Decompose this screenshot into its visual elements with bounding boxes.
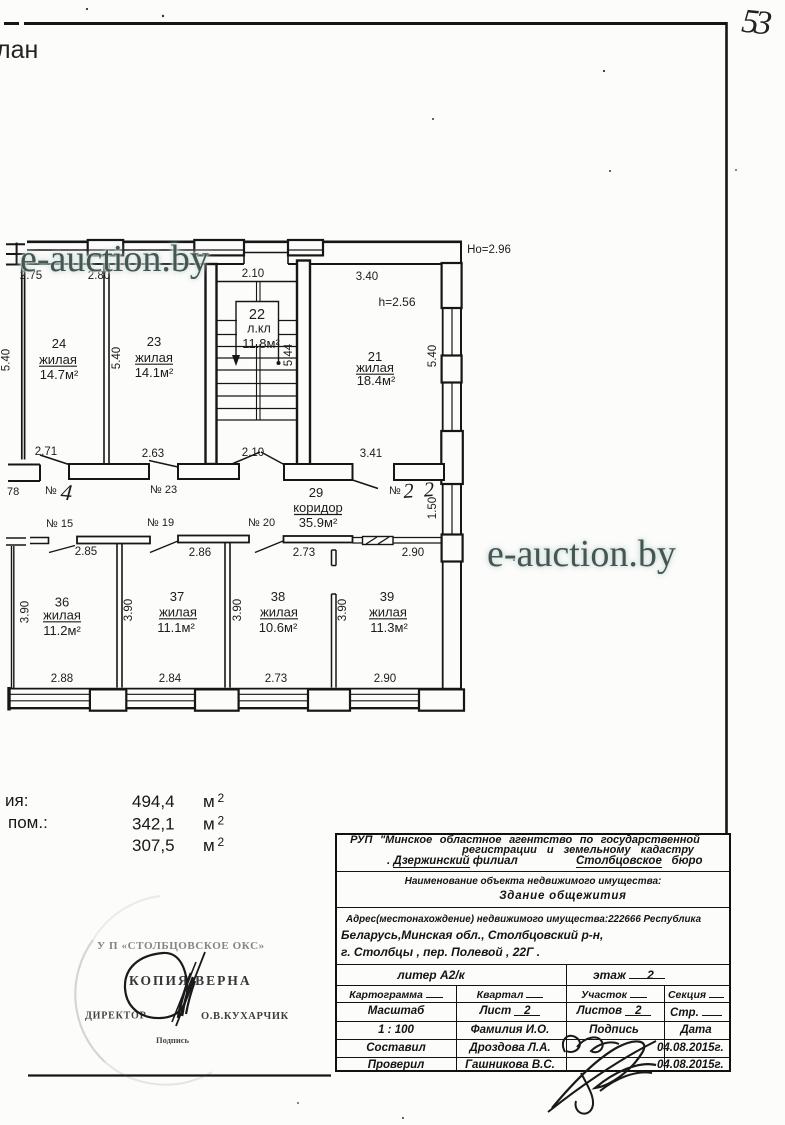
svg-text:2.90: 2.90 [402,547,424,559]
svg-text:3.90: 3.90 [123,599,135,621]
svg-text:35.9м²: 35.9м² [299,515,338,530]
svg-text:жилая: жилая [43,608,81,623]
svg-text:2.10: 2.10 [242,447,264,459]
svg-text:2.85: 2.85 [75,546,97,558]
svg-text:коридор: коридор [293,500,343,515]
svg-text:2.63: 2.63 [142,448,164,460]
svg-text:У П «СТОЛБЦОВСКОЕ ОКС»: У П «СТОЛБЦОВСКОЕ ОКС» [97,940,265,952]
svg-text:5.40: 5.40 [1,349,13,371]
svg-text:2.88: 2.88 [51,673,73,685]
svg-text:2.86: 2.86 [189,547,211,559]
svg-text:2.10: 2.10 [242,268,264,280]
svg-text:11.1м²: 11.1м² [157,620,195,635]
svg-text:ия:: ия: [5,791,28,810]
svg-text:3.90: 3.90 [232,599,244,621]
svg-text:О.В.КУХАРЧИК: О.В.КУХАРЧИК [201,1011,289,1022]
svg-text:№ 20: № 20 [248,517,275,529]
svg-text:494,4: 494,4 [132,792,175,811]
svg-text:11.3м²: 11.3м² [370,620,408,635]
svg-text:жилая: жилая [39,352,77,367]
svg-text:№: № [389,485,401,497]
svg-text:2: 2 [218,835,225,849]
svg-text:37: 37 [170,589,184,604]
svg-text:53: 53 [740,3,774,43]
svg-text:14.1м²: 14.1м² [135,365,174,380]
svg-text:3.90: 3.90 [20,601,32,623]
svg-text:жилая: жилая [159,605,197,620]
svg-text:3.41: 3.41 [360,448,382,460]
svg-text:2.84: 2.84 [159,673,182,685]
svg-text:342,1: 342,1 [132,815,175,834]
svg-text:лан: лан [0,36,38,64]
svg-text:78: 78 [7,486,19,498]
svg-text:5.40: 5.40 [111,347,123,369]
svg-text:Но=2.96: Но=2.96 [467,244,511,256]
svg-text:2.73: 2.73 [293,547,315,559]
svg-text:14.7м²: 14.7м² [40,367,79,382]
svg-text:пом.:: пом.: [8,813,48,832]
svg-text:2.90: 2.90 [374,673,396,685]
svg-text:3.40: 3.40 [356,271,378,283]
svg-text:№ 15: № 15 [46,518,73,530]
svg-text:18.4м²: 18.4м² [357,373,396,388]
svg-text:39: 39 [380,589,394,604]
svg-text:жилая: жилая [369,605,407,620]
svg-text:м: м [203,792,215,811]
svg-text:307,5: 307,5 [132,836,175,855]
svg-text:2.71: 2.71 [35,446,57,458]
svg-text:№ 23: № 23 [150,484,177,496]
svg-text:Подпись: Подпись [156,1035,189,1045]
svg-text:2.73: 2.73 [265,673,287,685]
svg-text:м: м [203,836,215,855]
svg-text:№: № [45,485,57,497]
svg-text:11.2м²: 11.2м² [43,623,81,638]
svg-text:жилая: жилая [135,350,173,365]
svg-text:38: 38 [271,589,285,604]
svg-text:2: 2 [218,791,225,805]
svg-text:3.90: 3.90 [337,599,349,621]
svg-text:5.44: 5.44 [283,343,295,366]
svg-text:№ 19: № 19 [147,517,174,529]
svg-text:11.8м²: 11.8м² [242,336,280,351]
svg-text:2: 2 [218,814,225,828]
svg-text:л.кл: л.кл [247,322,271,336]
svg-text:10.6м²: 10.6м² [259,620,298,635]
svg-text:24: 24 [52,336,66,351]
svg-text:29: 29 [309,485,323,500]
svg-text:м: м [203,815,215,834]
svg-text:жилая: жилая [260,605,298,620]
svg-text:4: 4 [60,480,74,506]
svg-text:h=2.56: h=2.56 [378,295,415,309]
svg-text:5.40: 5.40 [427,345,439,367]
svg-text:23: 23 [147,334,161,349]
